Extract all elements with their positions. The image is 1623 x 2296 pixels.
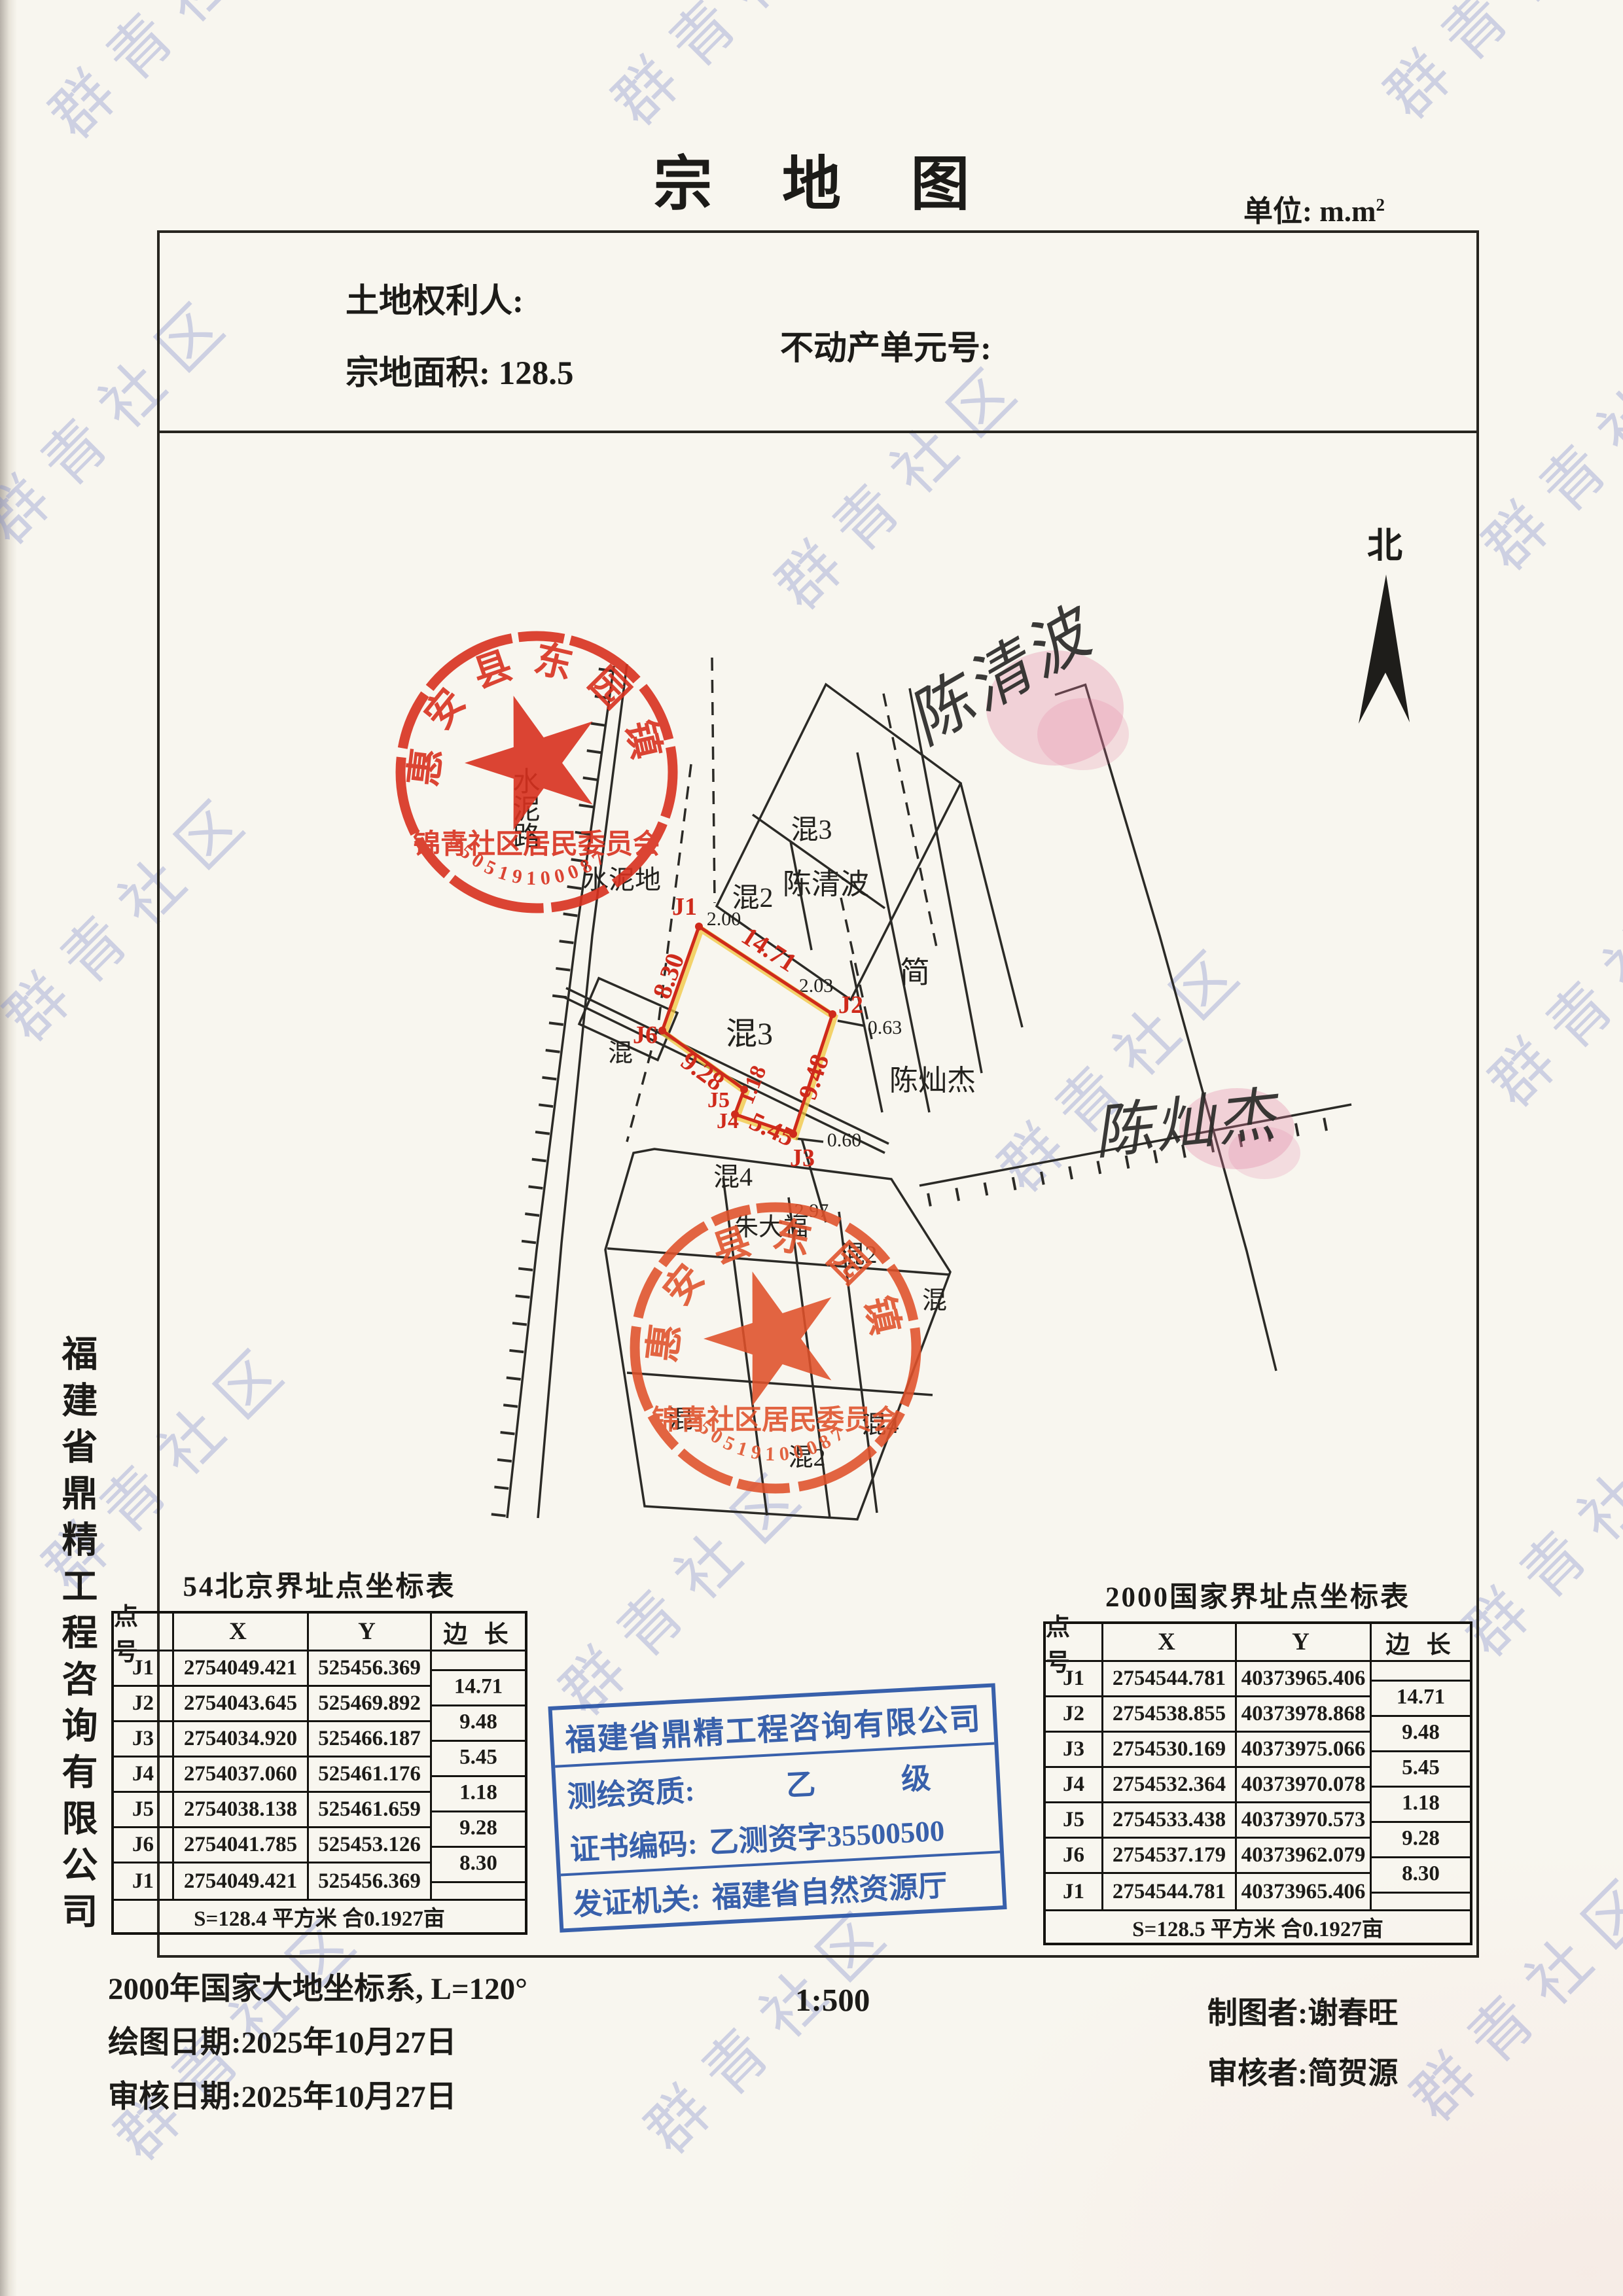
village-seal-lower: 惠安县东园镇 锦青社区居民委员会 350519100087: [635, 1207, 916, 1489]
table-cell: J3: [114, 1722, 174, 1757]
table-header-cell: 边 长: [1372, 1624, 1470, 1662]
table-cell: J2: [1046, 1697, 1103, 1733]
table-row: J22754043.645525469.892: [114, 1687, 432, 1722]
table-cell: 40373965.406: [1237, 1874, 1372, 1909]
table-cell: J1: [1046, 1874, 1103, 1909]
table-cell: 40373965.406: [1237, 1662, 1372, 1697]
building-label: 混3: [791, 815, 832, 845]
edge-divider: [432, 1846, 525, 1848]
table-row: J62754537.17940373962.079: [1046, 1839, 1372, 1874]
edge-label-118: 1.18: [734, 1063, 772, 1108]
table-edge-column: 边 长14.719.485.451.189.288.30: [432, 1614, 525, 1899]
edge-divider: [432, 1669, 525, 1671]
table-row: J12754544.78140373965.406: [1046, 1662, 1372, 1697]
table-cell: 40373978.868: [1237, 1697, 1372, 1733]
table-cell: 525456.369: [309, 1651, 432, 1687]
cadastral-map-page: 群青社区 群青社区 群青社区 群青社区 群青社区 群青社区 群青社区 群青社区 …: [0, 0, 1623, 2296]
table-cell: J4: [1046, 1768, 1103, 1803]
edge-divider: [432, 1775, 525, 1777]
far-east-boundary: [1085, 684, 1276, 1371]
table-cell: J1: [1046, 1662, 1103, 1697]
edge-length-cell: 1.18: [1372, 1792, 1470, 1816]
table-cell: 40373970.078: [1237, 1768, 1372, 1803]
edge-label-830: 8.30: [647, 949, 690, 1002]
east-division-line: [961, 783, 1022, 1027]
edge-divider: [1372, 1856, 1470, 1858]
north-arrow-glyph: [1359, 574, 1410, 724]
table-main-columns: 点 号XYJ12754544.78140373965.406J22754538.…: [1046, 1624, 1372, 1909]
north-label: 北: [1367, 526, 1402, 565]
parcel-map-drawing: 水泥地 水泥路 混3 陈清波 混2 混3 简 陈灿杰 混4 朱大福 混2 混 混…: [0, 0, 1623, 2296]
table-header-cell: 点 号: [1046, 1624, 1103, 1662]
point-label-j4: J4: [717, 1109, 739, 1133]
edge-label-948: 9.48: [793, 1051, 834, 1103]
building-label: 混4: [713, 1162, 753, 1192]
table-cell: J2: [114, 1687, 174, 1722]
table-cell: 2754544.781: [1103, 1874, 1237, 1909]
table-cell: J5: [114, 1793, 174, 1828]
offset-dim: 0.60: [827, 1129, 862, 1151]
offset-dim: 0.63: [868, 1017, 902, 1038]
table-cell: 525453.126: [309, 1828, 432, 1863]
table-cell: 2754038.138: [174, 1793, 309, 1828]
table-cell: 40373970.573: [1237, 1803, 1372, 1839]
table-cell: 2754538.855: [1103, 1697, 1237, 1733]
qualification-label: 测绘资质:: [566, 1766, 696, 1815]
table-cell: J5: [1046, 1803, 1103, 1839]
edge-divider: [1372, 1680, 1470, 1682]
building-label: 混: [608, 1040, 633, 1067]
cert-value: 乙测资字35500500: [708, 1806, 946, 1861]
table-cell: J4: [114, 1757, 174, 1793]
edge-length-cell: 14.71: [432, 1675, 525, 1699]
edge-label-1471: 14.71: [736, 921, 802, 978]
edge-divider: [1372, 1892, 1470, 1894]
north-arrow: 北: [1359, 526, 1410, 724]
issuer-value: 福建省自然资源厅: [711, 1861, 948, 1916]
table-header-cell: Y: [1237, 1624, 1372, 1662]
point-label-j1: J1: [672, 893, 697, 921]
table-row: J52754533.43840373970.573: [1046, 1803, 1372, 1839]
table-main-columns: 点 号XYJ12754049.421525456.369J22754043.64…: [114, 1614, 432, 1899]
table-cell: 2754532.364: [1103, 1768, 1237, 1803]
table-header-cell: X: [1103, 1624, 1237, 1662]
table-cell: 525469.892: [309, 1687, 432, 1722]
table-row: J22754538.85540373978.868: [1046, 1697, 1372, 1733]
owner-label-chenqingbo: 陈清波: [783, 868, 869, 900]
table-row: J32754034.920525466.187: [114, 1722, 432, 1757]
cluster-cross-2: [627, 1373, 933, 1395]
table-cell: 525461.176: [309, 1757, 432, 1793]
table-row: J42754532.36440373970.078: [1046, 1768, 1372, 1803]
table-cell: J1: [114, 1863, 174, 1899]
owner-label-jian: 简: [900, 956, 930, 989]
edge-length-cell: 5.45: [432, 1746, 525, 1770]
edge-divider: [432, 1810, 525, 1812]
edge-length-cell: 14.71: [1372, 1686, 1470, 1710]
table-summary-row: S=128.5 平方米 合0.1927亩: [1046, 1909, 1470, 1943]
table-cell: 2754533.438: [1103, 1803, 1237, 1839]
table-row: J12754544.78140373965.406: [1046, 1874, 1372, 1909]
edge-divider: [1372, 1715, 1470, 1717]
table-header-cell: Y: [309, 1614, 432, 1651]
table-edge-column: 边 长14.719.485.451.189.288.30: [1372, 1624, 1470, 1909]
table-cell: J3: [1046, 1733, 1103, 1768]
table-row: J12754049.421525456.369: [114, 1651, 432, 1687]
parcel-structure-label: 混3: [726, 1017, 773, 1051]
dashed-boundary-north: [712, 658, 715, 903]
table-cell: 525466.187: [309, 1722, 432, 1757]
table-cell: 2754530.169: [1103, 1733, 1237, 1768]
edge-length-cell: 9.28: [432, 1816, 525, 1841]
edge-divider: [1372, 1750, 1470, 1752]
edge-length-cell: 5.45: [1372, 1756, 1470, 1780]
edge-divider: [432, 1740, 525, 1742]
point-label-j2: J2: [838, 991, 863, 1019]
surveyor-qualification-stamp: 福建省鼎精工程咨询有限公司 测绘资质: 乙 级 证书编码: 乙测资字355005…: [548, 1683, 1007, 1932]
table-cell: J6: [114, 1828, 174, 1863]
table-title: 2000国家界址点坐标表: [1043, 1574, 1472, 1615]
edge-divider: [432, 1881, 525, 1883]
table-header-cell: X: [174, 1614, 309, 1651]
table-cell: 2754037.060: [174, 1757, 309, 1793]
table-cell: 2754041.785: [174, 1828, 309, 1863]
table-box: 点 号XYJ12754544.78140373965.406J22754538.…: [1043, 1621, 1472, 1945]
table-cell: 525461.659: [309, 1793, 432, 1828]
leader-063: [838, 1021, 865, 1026]
issuer-label: 发证机关:: [571, 1874, 701, 1923]
village-seal-upper: 惠安县东园镇 锦青社区居民委员会 350519100087: [401, 636, 673, 908]
point-label-j3: J3: [790, 1144, 815, 1172]
table-row: J12754049.421525456.369: [114, 1863, 432, 1899]
qualification-value: 乙 级: [785, 1752, 971, 1804]
table-cell: J6: [1046, 1839, 1103, 1874]
point-label-j6: J6: [633, 1021, 658, 1049]
table-title: 54北京界址点坐标表: [111, 1564, 527, 1604]
table-cell: 2754544.781: [1103, 1662, 1237, 1697]
east-strip-line-1: [857, 752, 929, 1112]
dashed-boundary-west: [627, 764, 691, 1142]
edge-divider: [1372, 1821, 1470, 1823]
edge-length-cell: 8.30: [432, 1852, 525, 1876]
table-row: J52754038.138525461.659: [114, 1793, 432, 1828]
table-cell: 2754537.179: [1103, 1839, 1237, 1874]
edge-divider: [432, 1704, 525, 1706]
edge-length-cell: 9.48: [432, 1710, 525, 1735]
edge-length-cell: 9.48: [1372, 1721, 1470, 1745]
table-header-cell: 点 号: [114, 1614, 174, 1651]
edge-length-cell: 1.18: [432, 1781, 525, 1805]
owner-label-chencanjie: 陈灿杰: [889, 1065, 976, 1097]
table-cell: 2754049.421: [174, 1863, 309, 1899]
table-beijing54: 54北京界址点坐标表 点 号XYJ12754049.421525456.369J…: [111, 1564, 527, 1935]
fingerprint-smudge: [1037, 698, 1129, 770]
table-cgcs2000: 2000国家界址点坐标表 点 号XYJ12754544.78140373965.…: [1043, 1574, 1472, 1945]
table-cell: 40373975.066: [1237, 1733, 1372, 1768]
table-cell: J1: [114, 1651, 174, 1687]
table-cell: 40373962.079: [1237, 1839, 1372, 1874]
table-row: J62754041.785525453.126: [114, 1828, 432, 1863]
table-cell: 525456.369: [309, 1863, 432, 1899]
offset-dim: 2.00: [707, 908, 741, 930]
table-row: J32754530.16940373975.066: [1046, 1733, 1372, 1768]
table-summary-row: S=128.4 平方米 合0.1927亩: [114, 1899, 525, 1932]
table-box: 点 号XYJ12754049.421525456.369J22754043.64…: [111, 1611, 527, 1935]
cert-label: 证书编码:: [569, 1819, 698, 1868]
table-header-cell: 边 长: [432, 1614, 525, 1651]
edge-divider: [1372, 1786, 1470, 1788]
edge-length-cell: 8.30: [1372, 1862, 1470, 1886]
table-cell: 2754043.645: [174, 1687, 309, 1722]
table-cell: 2754049.421: [174, 1651, 309, 1687]
edge-length-cell: 9.28: [1372, 1827, 1470, 1851]
table-row: J42754037.060525461.176: [114, 1757, 432, 1793]
building-label: 混: [922, 1287, 947, 1315]
leader-060: [796, 1139, 823, 1142]
table-cell: 2754034.920: [174, 1722, 309, 1757]
